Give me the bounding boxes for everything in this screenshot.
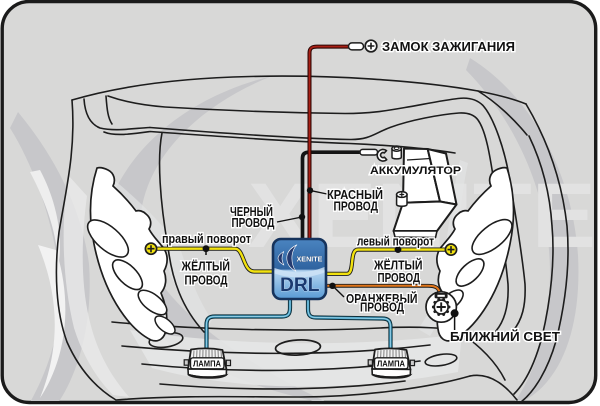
svg-text:ЛАМПА: ЛАМПА	[193, 359, 221, 368]
svg-text:ПРОВОД: ПРОВОД	[360, 301, 404, 315]
svg-text:ЖЁЛТЫЙ: ЖЁЛТЫЙ	[181, 259, 230, 274]
svg-text:левый поворот: левый поворот	[357, 235, 434, 249]
svg-text:ПРОВОД: ПРОВОД	[185, 274, 228, 288]
svg-text:ЛАМПА: ЛАМПА	[377, 359, 405, 368]
svg-text:ПРОВОД: ПРОВОД	[232, 216, 275, 230]
svg-text:DRL: DRL	[280, 274, 320, 296]
svg-text:БЛИЖНИЙ СВЕТ: БЛИЖНИЙ СВЕТ	[450, 329, 560, 344]
svg-text:ПРОВОД: ПРОВОД	[334, 200, 379, 214]
svg-text:XENITE: XENITE	[297, 257, 323, 264]
svg-text:правый поворот: правый поворот	[162, 232, 251, 246]
svg-text:ЗАМОК ЗАЖИГАНИЯ: ЗАМОК ЗАЖИГАНИЯ	[382, 40, 515, 54]
svg-text:ПРОВОД: ПРОВОД	[378, 271, 421, 285]
svg-text:АККУМУЛЯТОР: АККУМУЛЯТОР	[370, 165, 461, 177]
